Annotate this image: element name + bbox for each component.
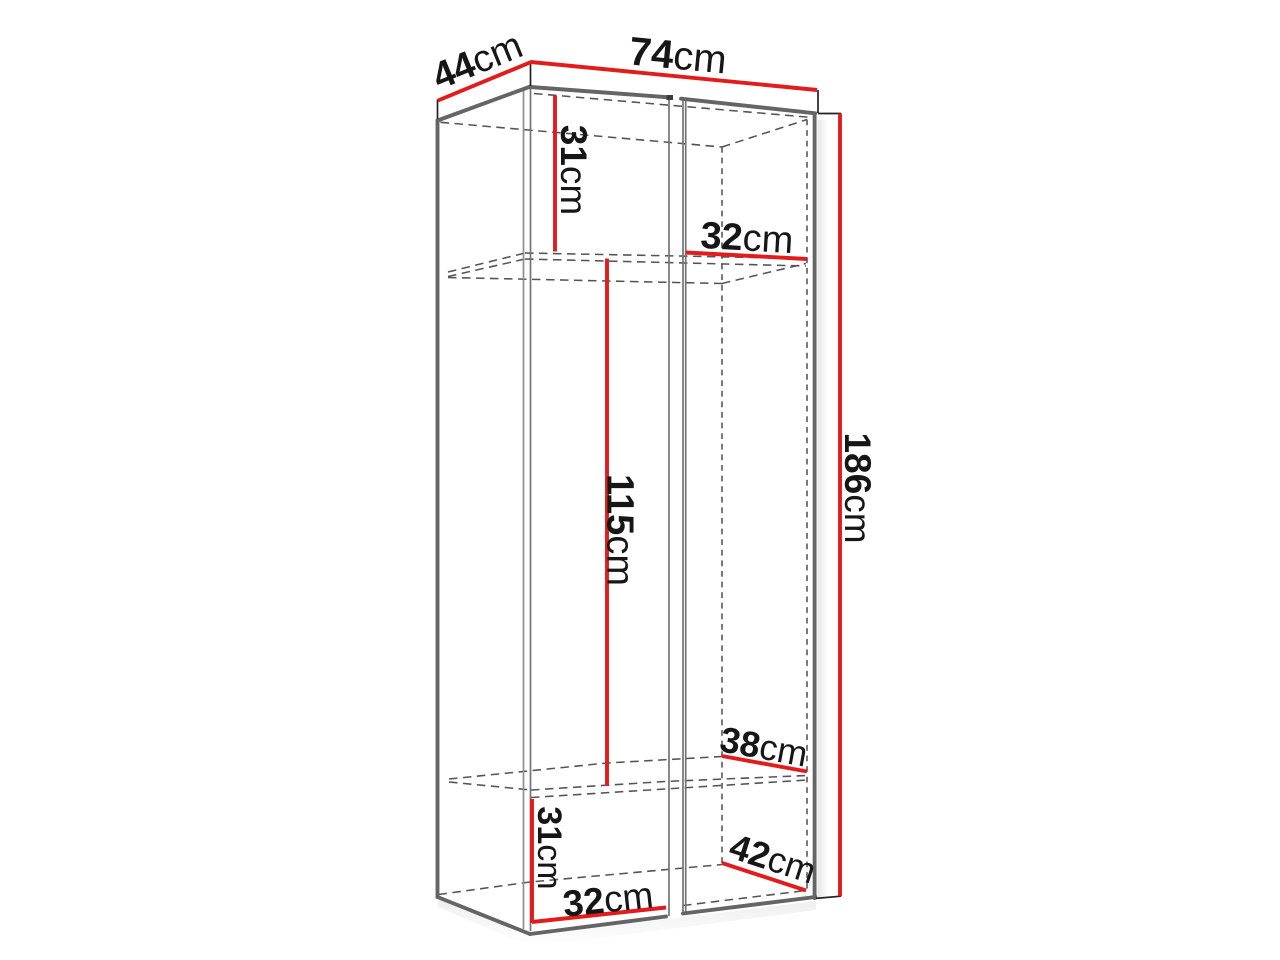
svg-text:31cm: 31cm — [553, 125, 594, 215]
svg-text:44cm: 44cm — [427, 24, 529, 98]
svg-text:32cm: 32cm — [561, 874, 655, 925]
svg-text:32cm: 32cm — [699, 215, 794, 262]
svg-text:186cm: 186cm — [837, 432, 878, 543]
svg-text:115cm: 115cm — [599, 474, 641, 586]
svg-text:31cm: 31cm — [530, 806, 568, 889]
svg-text:74cm: 74cm — [627, 29, 729, 82]
svg-text:38cm: 38cm — [717, 718, 811, 774]
